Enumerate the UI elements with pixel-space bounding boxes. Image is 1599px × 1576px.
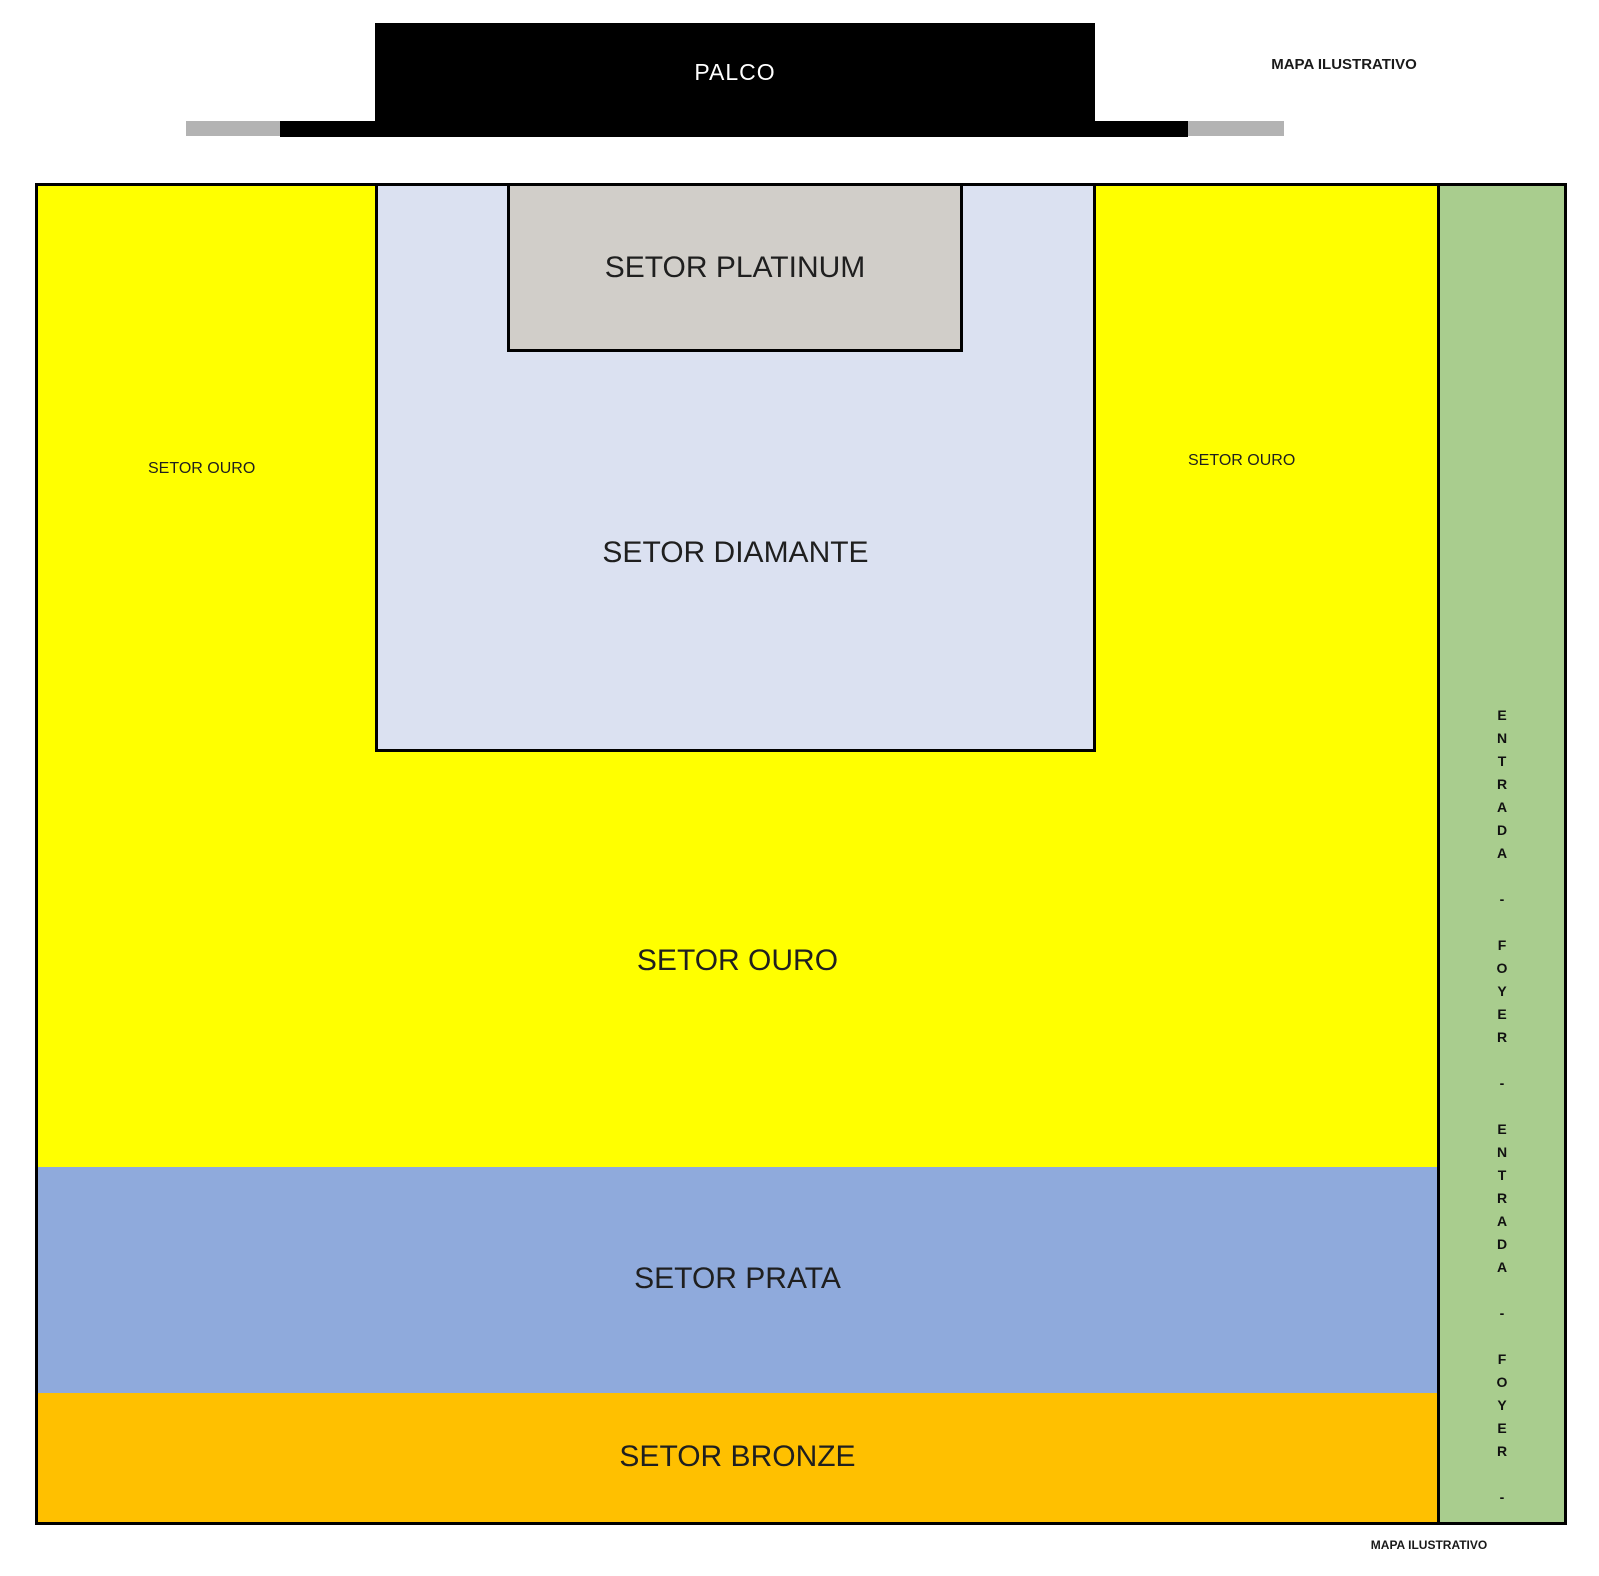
sector-ouro-label-right: SETOR OURO [1188, 453, 1295, 470]
watermark-bottom: MAPA ILUSTRATIVO [1349, 1538, 1509, 1552]
stage-wing-right [1188, 121, 1284, 136]
entrance-foyer-strip: E N T R A D A - F O Y E R - E N T R A D … [1437, 183, 1567, 1525]
sector-ouro-label-center: SETOR OURO [35, 945, 1440, 977]
sector-bronze-label: SETOR BRONZE [35, 1441, 1440, 1473]
sector-platinum-label: SETOR PLATINUM [605, 252, 866, 284]
entrance-foyer-vertical-text: E N T R A D A - F O Y E R - E N T R A D … [1440, 704, 1564, 1509]
sector-ouro-label-left: SETOR OURO [148, 461, 255, 478]
sector-platinum-region[interactable]: SETOR PLATINUM [507, 183, 963, 352]
stage-wing-left [186, 121, 280, 136]
sector-prata-label: SETOR PRATA [35, 1263, 1440, 1295]
stage: PALCO [375, 23, 1095, 121]
sector-diamante-label: SETOR DIAMANTE [375, 537, 1096, 569]
venue-seating-map: PALCO MAPA ILUSTRATIVO SETOR PLATINUM SE… [0, 0, 1599, 1576]
watermark-top: MAPA ILUSTRATIVO [1244, 56, 1444, 73]
stage-apron-bar [280, 121, 1188, 137]
stage-label: PALCO [694, 59, 775, 86]
